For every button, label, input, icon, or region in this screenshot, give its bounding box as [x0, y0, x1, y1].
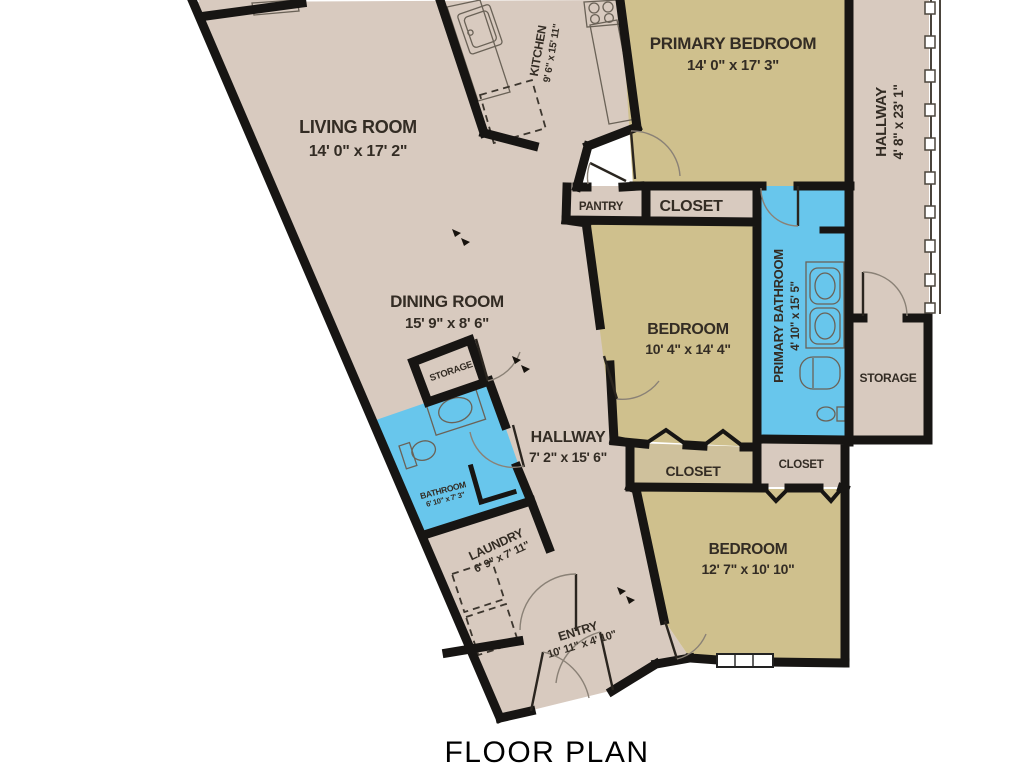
- svg-text:15' 9" x 8' 6": 15' 9" x 8' 6": [405, 315, 489, 332]
- label-closet-left: CLOSET: [666, 463, 722, 479]
- svg-text:CLOSET: CLOSET: [779, 459, 824, 471]
- svg-text:CLOSET: CLOSET: [666, 463, 722, 479]
- svg-text:4' 10" x 15' 5": 4' 10" x 15' 5": [790, 281, 802, 350]
- label-closet-top: CLOSET: [659, 198, 723, 215]
- label-hallway-right: HALLWAY 4' 8" x 23' 1": [873, 84, 906, 159]
- svg-text:BEDROOM: BEDROOM: [709, 541, 788, 558]
- svg-text:LIVING ROOM: LIVING ROOM: [299, 117, 417, 137]
- svg-text:DINING ROOM: DINING ROOM: [390, 292, 504, 311]
- svg-text:14' 0" x 17' 3": 14' 0" x 17' 3": [687, 57, 779, 74]
- floor-primary-bedroom: [621, 0, 849, 186]
- svg-text:PRIMARY BEDROOM: PRIMARY BEDROOM: [650, 34, 817, 53]
- plan-title: FLOOR PLAN: [444, 736, 649, 768]
- svg-text:12' 7" x 10' 10": 12' 7" x 10' 10": [702, 561, 795, 577]
- svg-text:PANTRY: PANTRY: [579, 201, 624, 213]
- label-closet-right: CLOSET: [779, 459, 824, 471]
- label-storage-right: STORAGE: [859, 371, 916, 385]
- svg-text:10' 4" x 14' 4": 10' 4" x 14' 4": [645, 341, 731, 357]
- svg-text:STORAGE: STORAGE: [859, 371, 916, 385]
- svg-text:CLOSET: CLOSET: [659, 198, 723, 215]
- svg-text:HALLWAY: HALLWAY: [531, 429, 606, 446]
- label-pantry: PANTRY: [579, 201, 624, 213]
- window-bedroom-bottom: [717, 654, 773, 667]
- svg-text:PRIMARY BATHROOM: PRIMARY BATHROOM: [771, 249, 786, 383]
- floors: [193, 0, 929, 718]
- svg-text:4' 8" x 23' 1": 4' 8" x 23' 1": [891, 84, 906, 159]
- door-pantry: [587, 163, 626, 184]
- svg-text:14' 0" x 17' 2": 14' 0" x 17' 2": [309, 143, 407, 160]
- svg-text:7' 2" x 15' 6": 7' 2" x 15' 6": [529, 449, 607, 465]
- svg-text:HALLWAY: HALLWAY: [873, 87, 890, 157]
- floor-plan: LIVING ROOM 14' 0" x 17' 2" KITCHEN 9' 6…: [0, 0, 1024, 768]
- svg-text:BEDROOM: BEDROOM: [647, 321, 728, 338]
